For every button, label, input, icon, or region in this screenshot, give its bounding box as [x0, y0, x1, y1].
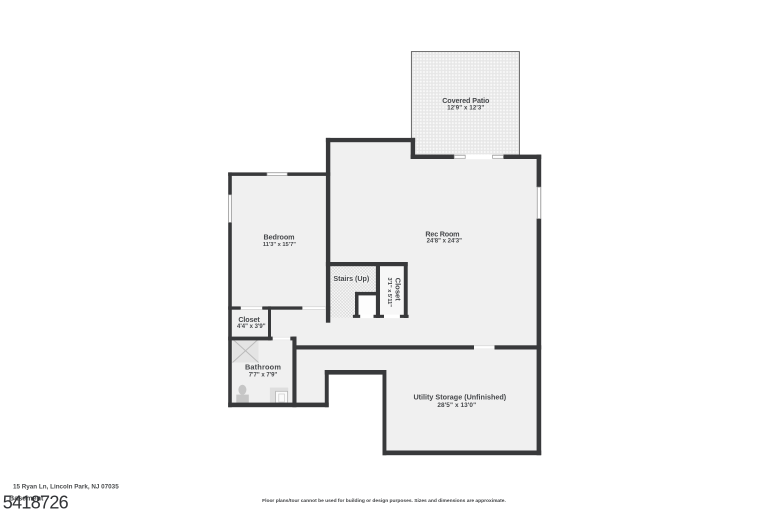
svg-text:Closet: Closet [238, 315, 260, 324]
svg-text:Covered Patio: Covered Patio [442, 96, 490, 105]
svg-text:Stairs (Up): Stairs (Up) [333, 274, 370, 283]
svg-text:15 Ryan Ln, Lincoln Park, NJ 0: 15 Ryan Ln, Lincoln Park, NJ 07035 [13, 483, 119, 490]
svg-text:5418726: 5418726 [3, 493, 69, 512]
svg-text:Closet: Closet [393, 278, 402, 302]
svg-text:4'4" x 3'9": 4'4" x 3'9" [237, 324, 266, 330]
svg-text:Bathroom: Bathroom [245, 363, 281, 372]
svg-text:12'9" x 12'3": 12'9" x 12'3" [447, 106, 484, 112]
svg-text:11'3" x 15'7": 11'3" x 15'7" [263, 242, 296, 248]
svg-text:Bedroom: Bedroom [264, 233, 295, 242]
svg-text:24'8" x 24'3": 24'8" x 24'3" [427, 239, 462, 245]
svg-text:Utility Storage (Unfinished): Utility Storage (Unfinished) [413, 392, 506, 401]
svg-text:28'5" x 13'0": 28'5" x 13'0" [437, 402, 476, 409]
svg-text:Floor plans/tour cannot be use: Floor plans/tour cannot be used for buil… [262, 498, 506, 504]
svg-text:3'1" x 5'11": 3'1" x 5'11" [386, 277, 392, 307]
svg-text:7'7" x 7'9": 7'7" x 7'9" [249, 372, 278, 378]
svg-text:Rec Room: Rec Room [425, 230, 459, 239]
